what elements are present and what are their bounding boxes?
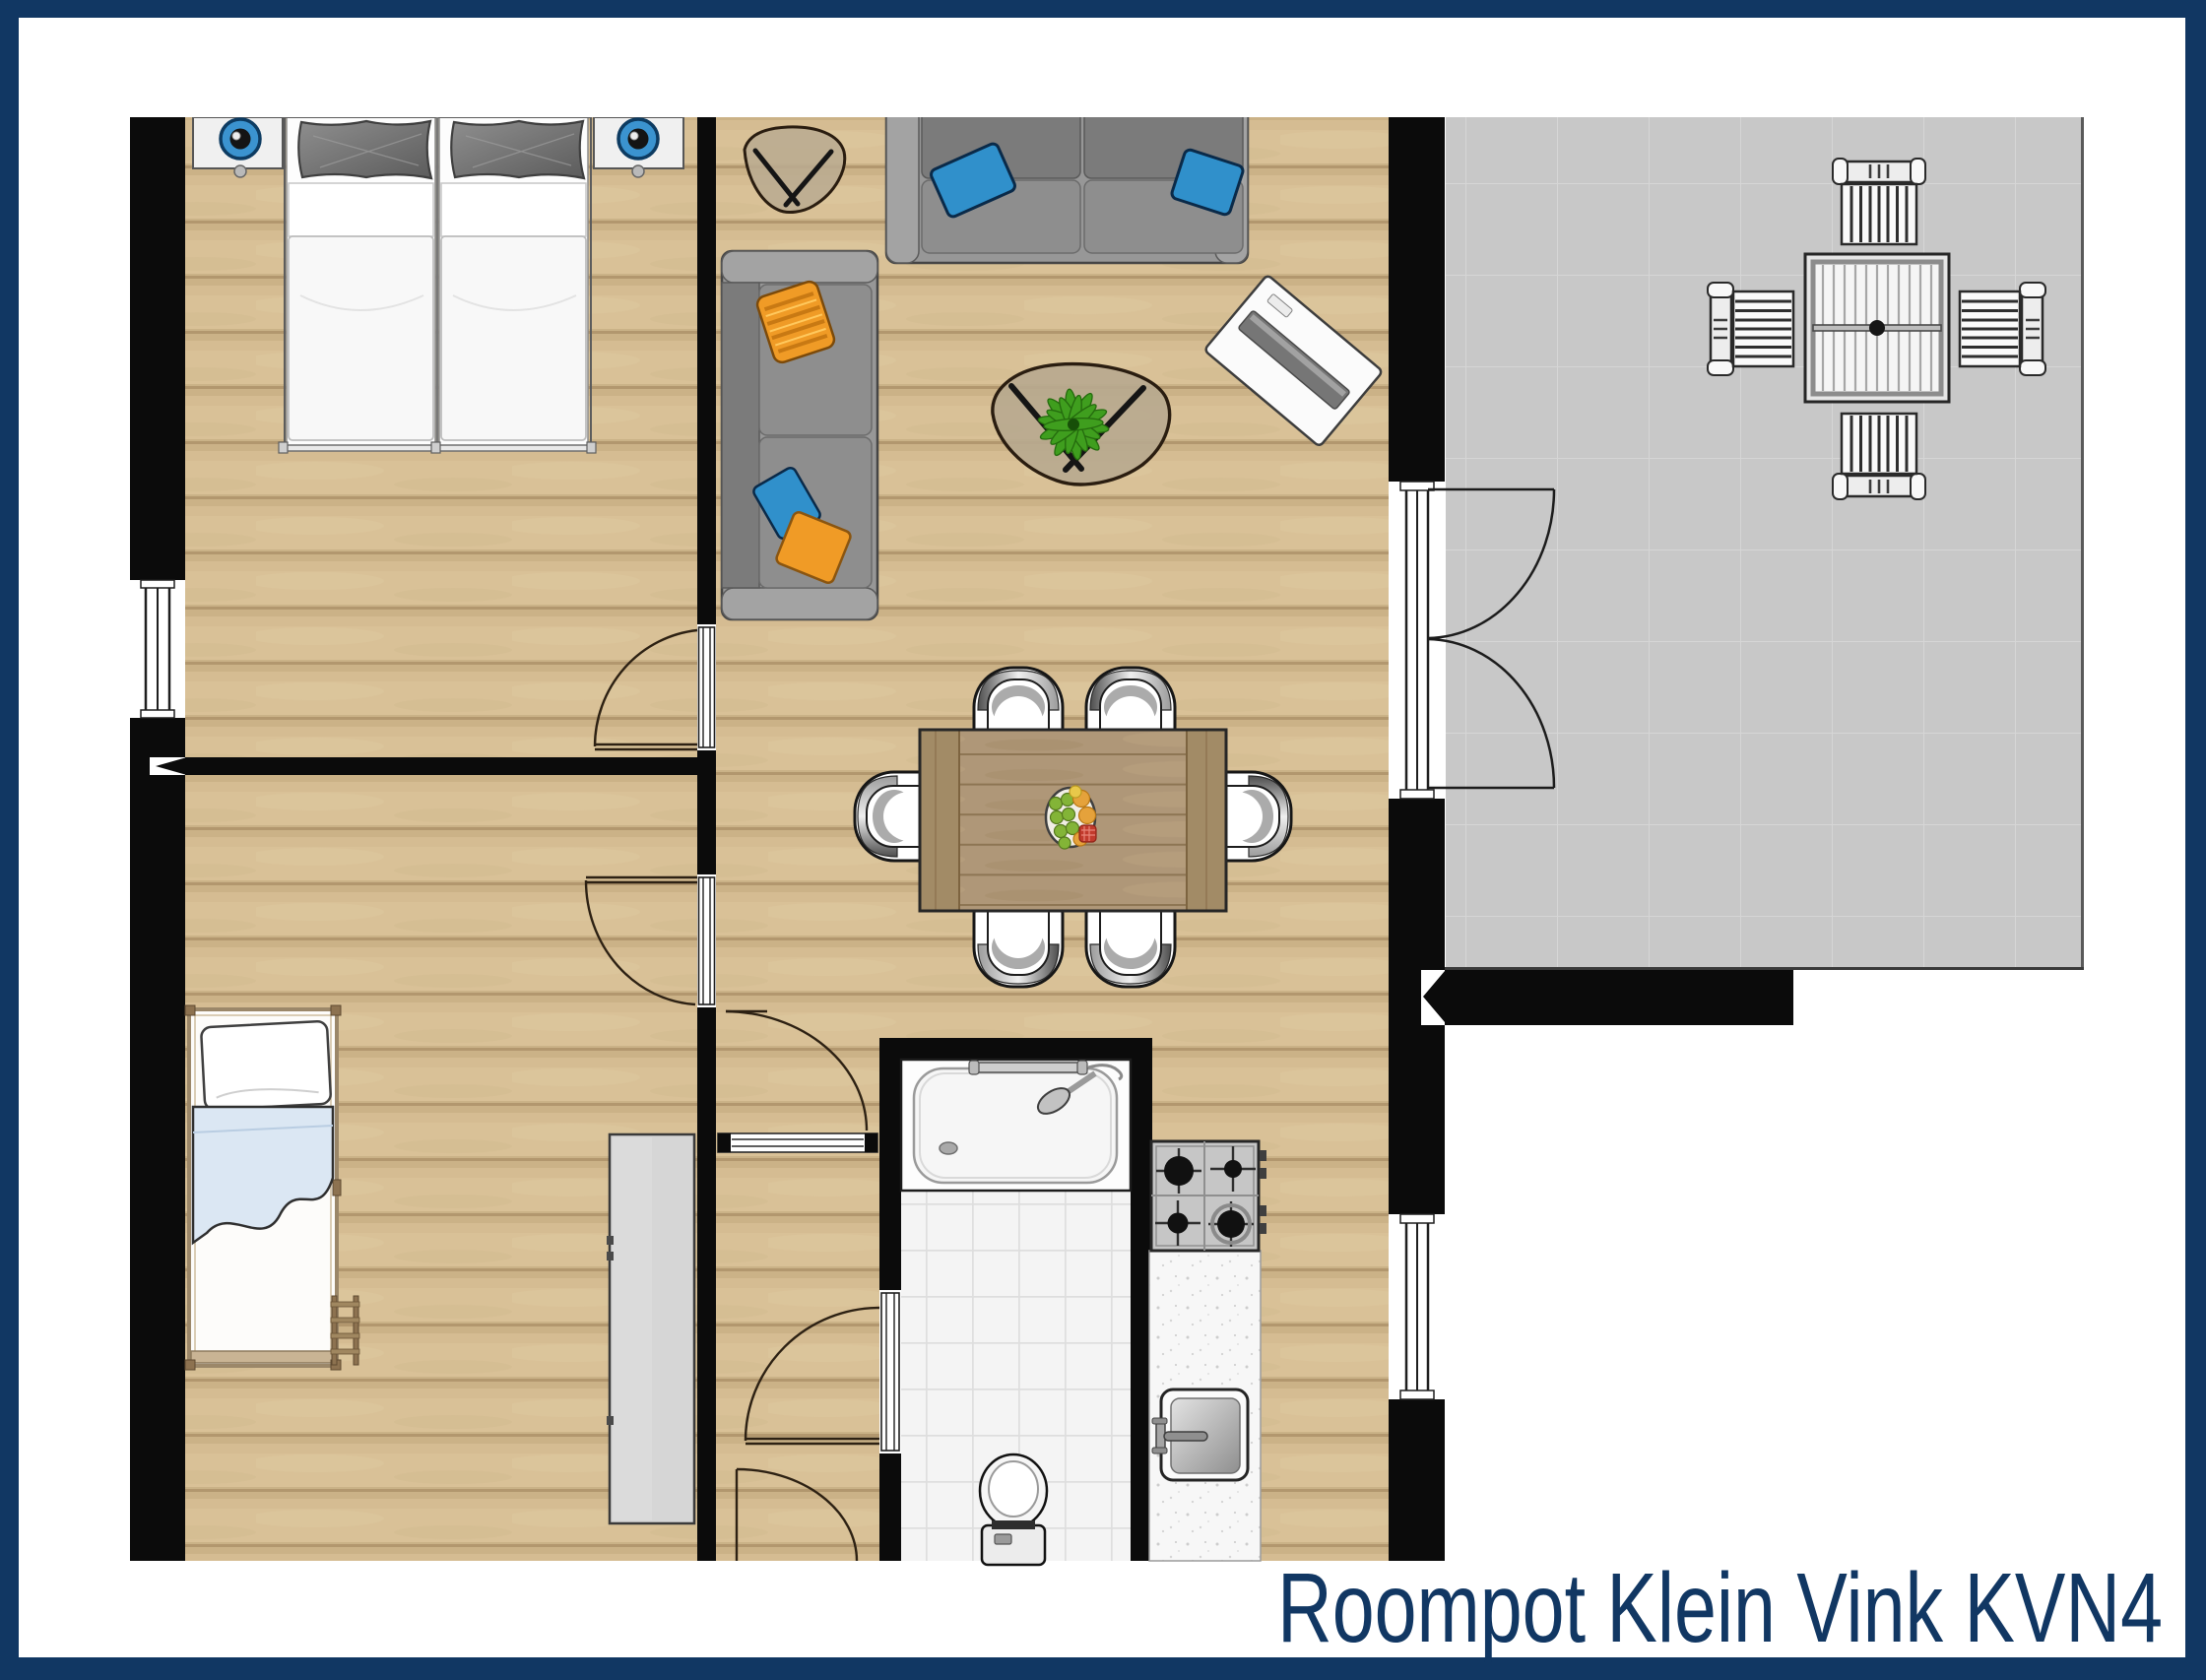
- svg-text:Roompot Klein Vink KVN4: Roompot Klein Vink KVN4: [1277, 1553, 2163, 1663]
